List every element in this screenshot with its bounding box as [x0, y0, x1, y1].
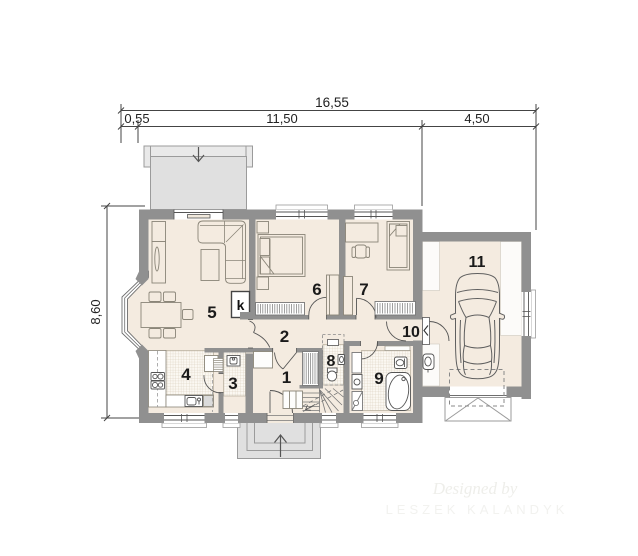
svg-text:4,50: 4,50	[464, 111, 489, 126]
svg-text:7: 7	[359, 280, 368, 299]
svg-text:3: 3	[228, 374, 237, 393]
svg-text:0,55: 0,55	[124, 111, 149, 126]
svg-text:6: 6	[312, 280, 321, 299]
svg-text:8,60: 8,60	[88, 299, 103, 324]
svg-text:9: 9	[374, 369, 383, 388]
svg-text:10: 10	[402, 324, 420, 341]
svg-text:2: 2	[280, 327, 289, 346]
svg-text:Designed by: Designed by	[432, 479, 518, 498]
svg-text:11: 11	[469, 254, 486, 271]
svg-text:4: 4	[181, 365, 191, 384]
svg-text:8: 8	[327, 353, 336, 370]
svg-text:11,50: 11,50	[266, 111, 298, 126]
svg-text:LESZEK KALANDYK: LESZEK KALANDYK	[386, 502, 569, 517]
svg-text:k: k	[237, 297, 245, 313]
svg-text:5: 5	[207, 303, 216, 322]
svg-text:1: 1	[282, 368, 291, 387]
svg-text:16,55: 16,55	[315, 95, 349, 110]
